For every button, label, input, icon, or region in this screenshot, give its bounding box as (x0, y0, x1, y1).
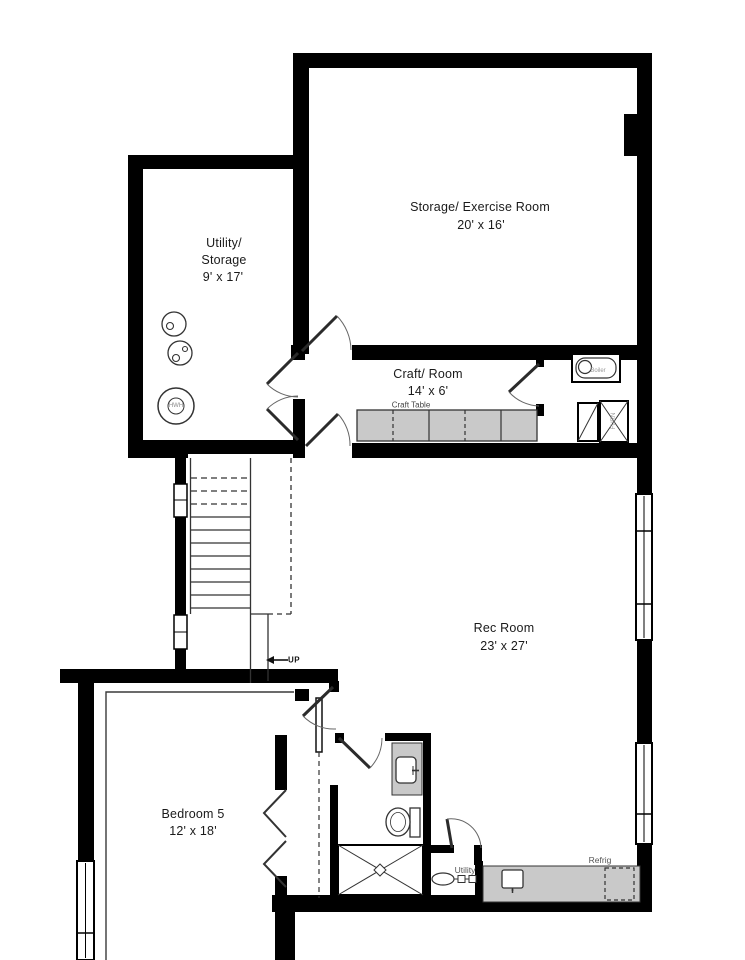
window-bedroom-west (77, 861, 94, 960)
stair-treads (191, 517, 250, 608)
wall-stair-top (186, 440, 296, 454)
wall-bath-west (330, 785, 338, 897)
stair-treads-dashed (191, 478, 250, 504)
door-rec-to-craft (306, 414, 350, 446)
room-label-bedroom5: Bedroom 5 (162, 807, 225, 821)
wall-bath-east (423, 733, 431, 903)
stairs-up-label: UP (288, 656, 300, 665)
floor-drain-1 (162, 312, 186, 336)
floor-drain-2 (168, 341, 192, 365)
door-utility-alcove (447, 819, 481, 848)
walls (60, 53, 652, 960)
floor-plan: Storage/ Exercise Room 20' x 16' Utility… (0, 0, 745, 960)
utility-alcove-label: Utility (455, 865, 476, 875)
room-label-utility-storage-2: Storage (201, 253, 246, 267)
shower (338, 845, 423, 895)
furnace-unit (578, 401, 628, 442)
bar-counter (483, 866, 640, 902)
wall-craft-bottom (352, 443, 652, 458)
craft-table-label: Craft Table (392, 401, 431, 410)
toilet (386, 808, 420, 837)
room-dim-craft: 14' x 6' (408, 384, 448, 398)
closet-bifold-doors (264, 790, 286, 887)
wall-storage-left (293, 53, 309, 354)
bathroom-fixtures (338, 743, 423, 895)
closet-partition (316, 698, 322, 898)
wall-bedroom-door-jamb (295, 689, 309, 701)
room-dim-rec: 23' x 27' (480, 639, 528, 653)
wall-bedroom-left (78, 669, 94, 861)
water-heater-label: HWH (169, 403, 183, 409)
wall-utility-top (128, 155, 309, 169)
door-bathroom (339, 738, 382, 768)
window-rec-east-lower (636, 743, 652, 844)
staircase (191, 458, 292, 683)
room-label-storage-exercise: Storage/ Exercise Room (410, 200, 550, 214)
room-label-craft: Craft/ Room (393, 367, 463, 381)
refrigerator-label: Refrig (589, 855, 612, 865)
craft-table (357, 410, 537, 441)
door-utility-double-upper (267, 353, 298, 397)
floor-plan-drawing (0, 0, 745, 960)
room-dim-bedroom5: 12' x 18' (169, 824, 217, 838)
window-stair-west-upper (174, 484, 187, 517)
closet-top-wall (316, 698, 322, 752)
up-arrow-icon (266, 656, 288, 664)
wall-top (293, 53, 652, 68)
room-dim-storage-exercise: 20' x 16' (457, 218, 505, 232)
wall-craft-west (293, 399, 305, 458)
room-label-rec: Rec Room (474, 621, 535, 635)
window-stair-west-lower (174, 615, 187, 649)
boiler-label: Boiler (590, 368, 605, 374)
room-dim-utility-storage: 9' x 17' (203, 270, 243, 284)
wall-utility-left (128, 155, 143, 445)
window-rec-east-upper (636, 494, 652, 640)
furnace-label: FURN (611, 413, 617, 430)
wall-utility-bottom (128, 440, 188, 458)
door-craft-to-boiler (509, 364, 539, 406)
wall-right-notch (624, 114, 637, 156)
wall-bedroom-top (60, 669, 338, 683)
wall-closet-stub-upper (275, 735, 287, 790)
door-craft-to-storage (302, 316, 351, 351)
room-label-utility-storage-1: Utility/ (206, 236, 242, 250)
vanity-sink (392, 743, 422, 795)
